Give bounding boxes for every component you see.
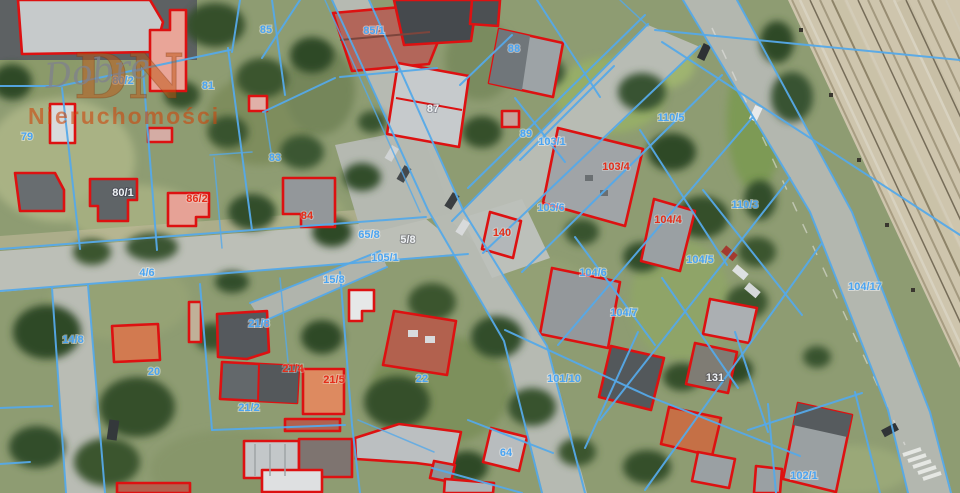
parcel-label-103-6: 103/6	[537, 202, 565, 214]
parcel-label-86-2: 86/2	[186, 193, 207, 205]
parcel-label-20: 20	[148, 366, 160, 378]
parcel-label-22: 22	[416, 373, 428, 385]
parcel-label-21-2: 21/2	[238, 402, 259, 414]
parcel-label-104-5: 104/5	[686, 254, 714, 266]
parcel-label-103-4: 103/4	[602, 161, 630, 173]
parcel-label-5-8: 5/8	[400, 234, 415, 246]
parcel-label-81: 81	[202, 80, 214, 92]
parcel-label-131: 131	[706, 372, 724, 384]
parcel-label-105-1: 105/1	[371, 252, 399, 264]
aerial-cadastral-map: 79 80/2 81 85 85/1 83 86/2 80/1 84 87 88…	[0, 0, 960, 493]
parcel-label-83: 83	[269, 152, 281, 164]
parcel-label-84: 84	[301, 210, 314, 222]
parcel-label-103-1: 103/1	[538, 136, 566, 148]
parcel-label-104-6: 104/6	[579, 267, 607, 279]
parcel-label-15-8: 15/8	[323, 274, 344, 286]
building-22	[383, 311, 456, 375]
parcel-label-89: 89	[520, 128, 532, 140]
parcel-label-21-4: 21/4	[282, 363, 304, 375]
parcel-label-102-1: 102/1	[790, 470, 818, 482]
parcel-label-21-5: 21/5	[323, 374, 344, 386]
parcel-label-14-8: 14/8	[62, 334, 83, 346]
parcel-label-101-10: 101/10	[547, 373, 581, 385]
parcel-label-104-7: 104/7	[610, 307, 638, 319]
watermark-name-text: Nieruchomości	[28, 103, 220, 129]
building-20	[112, 324, 160, 362]
parcel-label-88: 88	[508, 43, 520, 55]
parcel-label-65-8: 65/8	[358, 229, 379, 241]
parcel-label-87: 87	[427, 103, 439, 115]
parcel-label-80-1: 80/1	[112, 187, 133, 199]
parcel-label-79: 79	[21, 131, 33, 143]
parcel-label-110-3: 110/3	[732, 199, 759, 211]
parcel-label-21-8: 21/8	[248, 318, 269, 330]
parcel-label-104-4: 104/4	[654, 214, 682, 226]
parcel-label-85-1: 85/1	[363, 25, 384, 37]
parcel-label-104-17: 104/17	[848, 281, 882, 293]
parcel-label-64: 64	[500, 447, 513, 459]
parcel-label-110-5: 110/5	[658, 112, 685, 124]
parcel-label-4-6: 4/6	[139, 267, 154, 279]
parcel-label-85: 85	[260, 24, 272, 36]
parcel-label-140: 140	[493, 227, 511, 239]
map-canvas[interactable]: 79 80/2 81 85 85/1 83 86/2 80/1 84 87 88…	[0, 0, 960, 493]
